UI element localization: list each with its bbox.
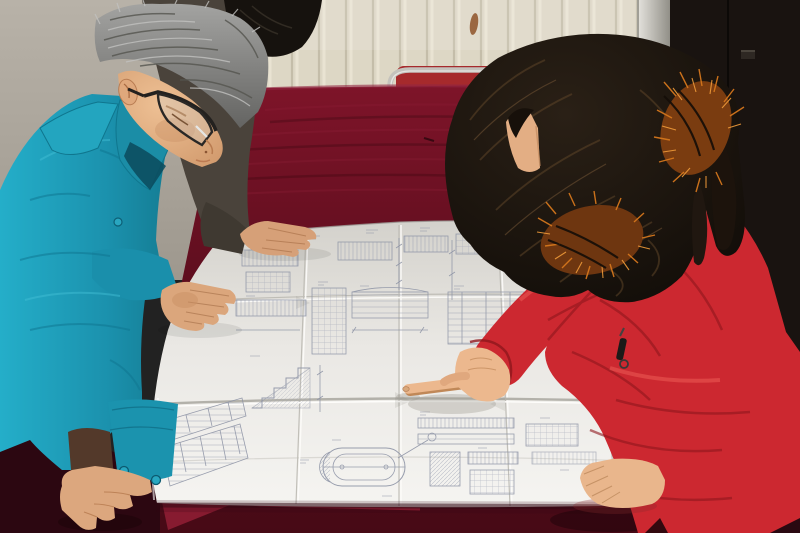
nostril bbox=[205, 151, 208, 154]
fingernail bbox=[403, 387, 409, 392]
cuff-snap-2 bbox=[152, 476, 161, 485]
scene-photo bbox=[0, 0, 800, 533]
knuckle-shading bbox=[172, 292, 198, 308]
photo-canvas bbox=[0, 0, 800, 533]
door-latch bbox=[741, 50, 755, 59]
man-cuff bbox=[108, 399, 178, 480]
jacket-snap bbox=[114, 218, 122, 226]
